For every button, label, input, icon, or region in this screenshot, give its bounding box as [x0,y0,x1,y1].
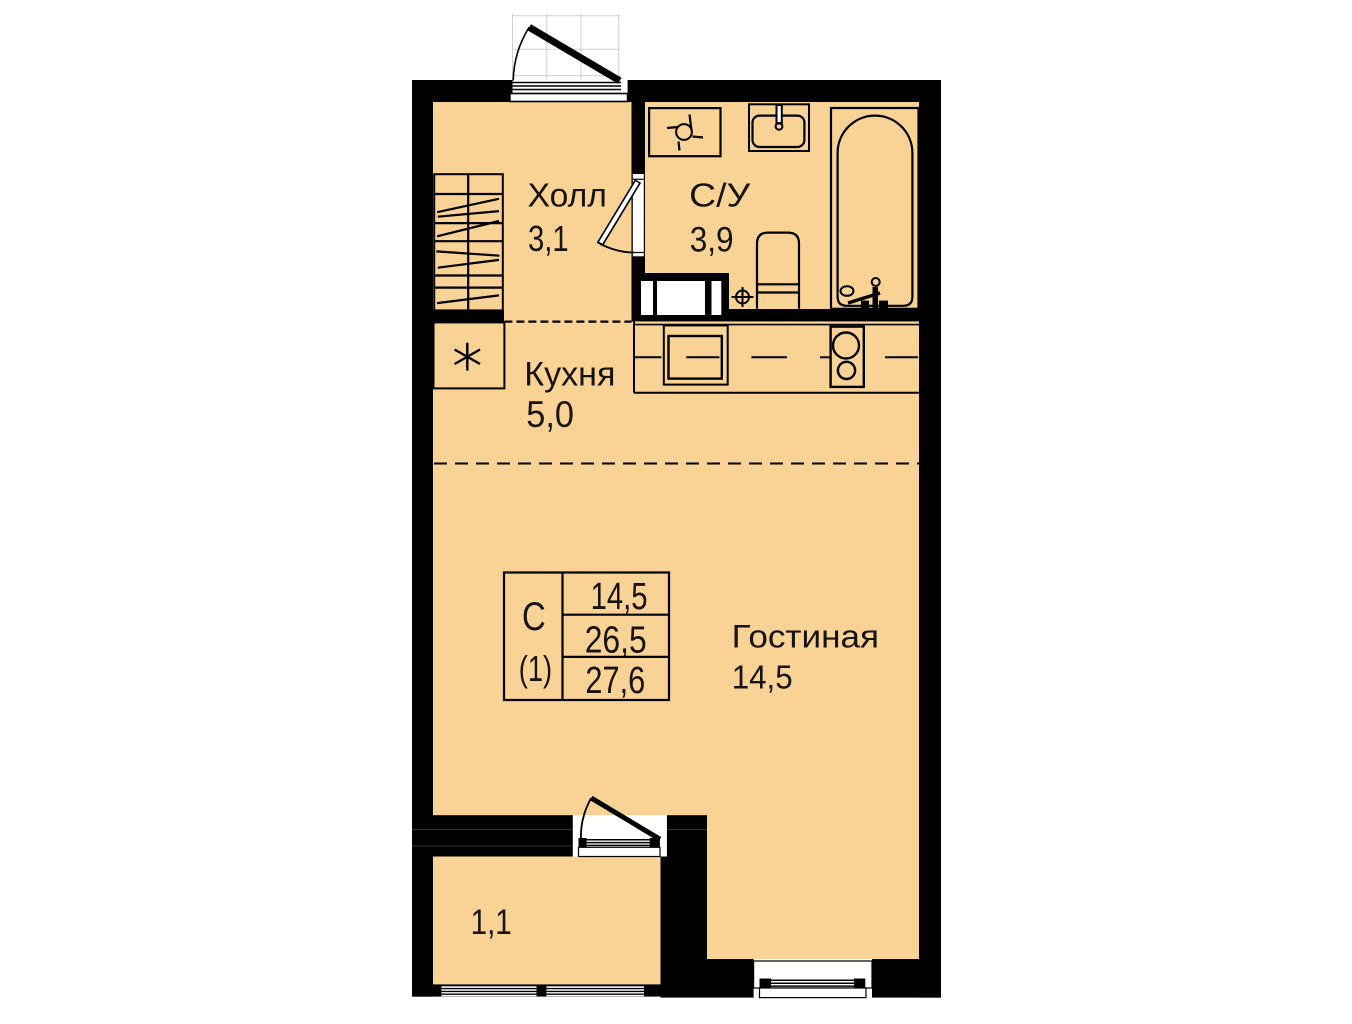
svg-text:14,5: 14,5 [732,659,793,696]
svg-text:1,1: 1,1 [471,903,512,942]
svg-text:С: С [522,595,546,639]
svg-text:14,5: 14,5 [591,576,648,618]
svg-text:3,9: 3,9 [690,221,734,260]
svg-text:(1): (1) [519,648,552,689]
svg-text:Холл: Холл [528,177,607,214]
svg-text:Гостиная: Гостиная [732,619,879,655]
svg-text:5,0: 5,0 [526,394,574,435]
svg-text:3,1: 3,1 [528,218,569,259]
svg-text:Кухня: Кухня [524,356,615,394]
svg-text:27,6: 27,6 [585,660,645,702]
svg-text:С/У: С/У [689,177,751,214]
svg-text:26,5: 26,5 [585,620,647,662]
